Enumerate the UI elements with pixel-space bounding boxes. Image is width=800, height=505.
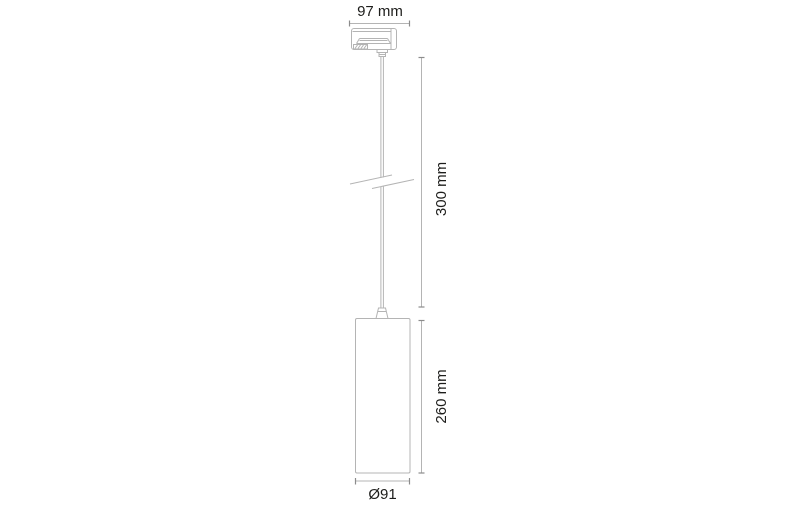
cord-grip — [376, 308, 388, 319]
label-suspension-length: 300 mm — [433, 162, 450, 216]
adapter-label-plate — [354, 45, 368, 50]
adapter-ledge — [357, 39, 391, 44]
dimension-adapter-width: 97 mm — [350, 3, 410, 27]
cylindrical-shade — [356, 319, 411, 474]
dimension-body-height: 260 mm — [419, 321, 451, 474]
dimension-body-diameter: Ø91 — [356, 478, 410, 503]
adapter-locking-nut — [377, 50, 388, 57]
label-body-height: 260 mm — [433, 369, 450, 423]
pendant-luminaire-dimension-drawing: 97 mm 300 mm 260 mm Ø91 — [0, 0, 800, 505]
cable-break-symbol — [350, 175, 414, 189]
drawing-canvas: 97 mm 300 mm 260 mm Ø91 — [0, 0, 800, 505]
label-adapter-width: 97 mm — [357, 3, 403, 20]
track-adapter — [352, 29, 397, 57]
dimension-suspension-length: 300 mm — [419, 58, 451, 308]
label-body-diameter: Ø91 — [368, 486, 396, 503]
